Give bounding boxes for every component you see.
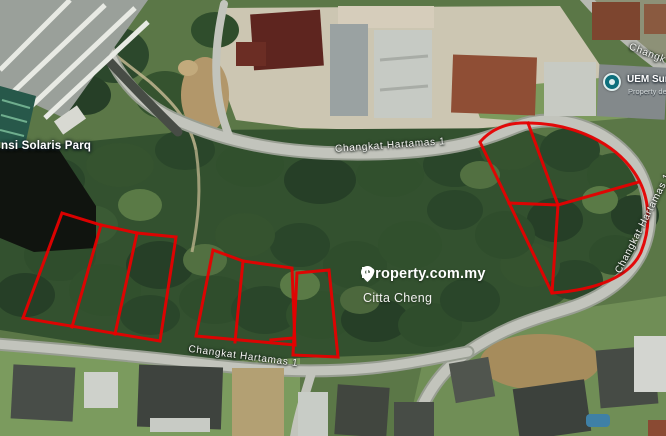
poi-subtitle: Property de <box>628 87 666 96</box>
satellite-map-screenshot: Changkat Hartamas 1 Changkat Hartamas 1 … <box>0 0 666 436</box>
lot-boundary-mid-stub <box>271 338 293 340</box>
place-dot-icon <box>603 73 621 91</box>
satellite-imagery <box>0 0 666 436</box>
poi-title: UEM Sun <box>627 74 666 85</box>
